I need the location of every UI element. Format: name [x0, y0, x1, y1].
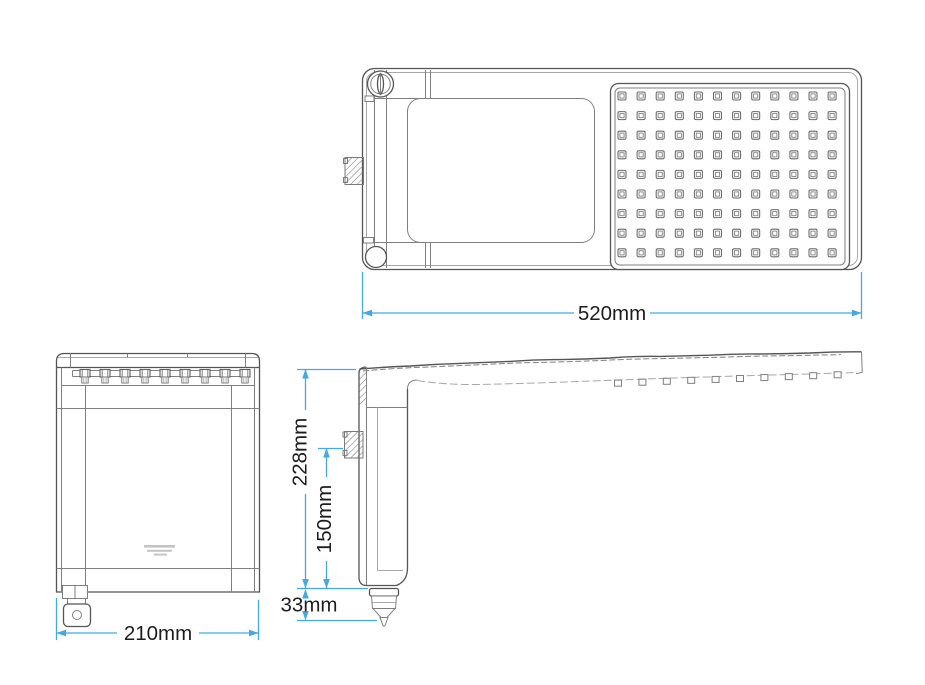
clip-head — [160, 370, 170, 378]
nozzle-inner — [792, 172, 796, 176]
nozzle — [771, 190, 779, 198]
nozzle-inner — [620, 114, 624, 118]
nozzle — [714, 249, 722, 257]
nozzle — [694, 92, 702, 100]
nozzle — [637, 112, 645, 120]
nozzle — [790, 151, 798, 159]
nozzle — [637, 151, 645, 159]
nozzle-inner — [715, 153, 719, 157]
nozzle-inner — [696, 94, 700, 98]
nozzle — [771, 249, 779, 257]
nozzle-inner — [620, 172, 624, 176]
nozzle-inner — [735, 114, 739, 118]
nozzle — [752, 131, 760, 139]
nozzle-tip — [810, 373, 817, 379]
nozzle — [809, 210, 817, 218]
spout-funnel — [373, 609, 395, 618]
nozzle — [694, 249, 702, 257]
clip-tab — [222, 377, 228, 383]
nozzle-inner — [773, 133, 777, 137]
nozzle-inner — [773, 192, 777, 196]
nozzle-inner — [715, 231, 719, 235]
nozzle-inner — [677, 94, 681, 98]
nozzle — [618, 131, 626, 139]
dim-label-top-width: 520mm — [578, 302, 646, 325]
nozzle-inner — [735, 192, 739, 196]
nozzle — [675, 249, 683, 257]
nozzle-inner — [620, 192, 624, 196]
nozzle-inner — [696, 133, 700, 137]
nozzle — [752, 92, 760, 100]
nozzle — [790, 210, 798, 218]
nozzle-inner — [811, 172, 815, 176]
nozzle-tip — [737, 375, 744, 381]
nozzle-clip — [220, 370, 230, 384]
nozzle — [790, 229, 798, 237]
clip-tab — [102, 377, 108, 383]
nozzle — [809, 92, 817, 100]
nozzle — [656, 131, 664, 139]
nozzle-inner — [830, 251, 834, 255]
clip-head — [120, 370, 130, 378]
arm-end-cap — [856, 352, 862, 374]
nozzle-inner — [754, 192, 758, 196]
nozzle — [675, 229, 683, 237]
nozzle-inner — [696, 251, 700, 255]
nozzle-inner — [696, 212, 700, 216]
clip-tab — [202, 377, 208, 383]
inlet-hatched-body — [345, 158, 364, 185]
top-latch-tab-lower — [364, 238, 374, 244]
front-view — [57, 354, 260, 627]
nozzle-inner — [658, 153, 662, 157]
dim-label-front-width: 210mm — [124, 622, 192, 645]
dim-label-side-spout: 33mm — [281, 594, 338, 617]
nozzle-tip — [688, 377, 695, 383]
nozzle-clip — [100, 370, 110, 384]
nozzle-inner — [830, 212, 834, 216]
nozzle-tip — [639, 379, 646, 385]
nozzle — [694, 151, 702, 159]
nozzle-inner — [754, 251, 758, 255]
nozzle-inner — [792, 231, 796, 235]
nozzle — [637, 190, 645, 198]
nozzle-inner — [620, 133, 624, 137]
clip-tab — [182, 377, 188, 383]
nozzle-clip — [80, 370, 90, 384]
nozzle-inner — [792, 192, 796, 196]
nozzle — [771, 92, 779, 100]
nozzle-inner — [792, 114, 796, 118]
nozzle — [733, 131, 741, 139]
brand-mark-line — [154, 554, 167, 556]
nozzle-inner — [715, 94, 719, 98]
dim-210-arrow-left — [57, 630, 67, 637]
nozzle — [675, 190, 683, 198]
nozzle-tip — [615, 380, 622, 386]
dim-150-arrow-top — [323, 448, 330, 458]
nozzle — [790, 170, 798, 178]
nozzle — [828, 229, 836, 237]
inlet-hatched-body — [345, 432, 364, 459]
nozzle — [656, 210, 664, 218]
nozzle — [771, 170, 779, 178]
inlet-pipe-hatch-side — [343, 432, 363, 459]
nozzle-inner — [811, 251, 815, 255]
nozzle — [790, 112, 798, 120]
nozzle-inner — [677, 153, 681, 157]
dim-520-arrow-left — [363, 310, 373, 317]
nozzle-inner — [735, 251, 739, 255]
nozzle — [828, 131, 836, 139]
nozzle-clip — [120, 370, 130, 384]
side-face-panel-lines — [378, 408, 404, 571]
nozzle-clip — [140, 370, 150, 384]
nozzle-inner — [639, 133, 643, 137]
clip-head — [140, 370, 150, 378]
nozzle — [694, 229, 702, 237]
dim-label-side-total: 228mm — [289, 418, 312, 486]
nozzle-inner — [830, 94, 834, 98]
nozzle — [752, 170, 760, 178]
nozzle-clip — [180, 370, 190, 384]
nozzle — [771, 131, 779, 139]
nozzle — [714, 170, 722, 178]
nozzle-inner — [773, 153, 777, 157]
clip-tab — [242, 377, 248, 383]
nozzle-inner — [639, 153, 643, 157]
technical-drawing-canvas: 520mm 210mm — [0, 0, 925, 685]
nozzle-inner — [754, 231, 758, 235]
nozzle-inner — [620, 212, 624, 216]
nozzle-inner — [677, 114, 681, 118]
nozzle-inner — [639, 114, 643, 118]
nozzle-inner — [658, 251, 662, 255]
nozzle — [694, 131, 702, 139]
nozzle-inner — [830, 231, 834, 235]
nozzle-inner — [639, 192, 643, 196]
nozzle — [809, 190, 817, 198]
nozzle — [714, 229, 722, 237]
nozzle — [694, 190, 702, 198]
nozzle — [733, 190, 741, 198]
nozzle — [694, 210, 702, 218]
nozzle — [618, 229, 626, 237]
nozzle-tip — [663, 378, 670, 384]
nozzle — [809, 112, 817, 120]
nozzle-inner — [735, 94, 739, 98]
nozzle — [828, 190, 836, 198]
nozzle-inner — [754, 114, 758, 118]
dimension-150: 150mm — [313, 448, 343, 589]
dimension-520: 520mm — [363, 272, 862, 325]
nozzle — [618, 112, 626, 120]
nozzle — [675, 112, 683, 120]
nozzle — [771, 210, 779, 218]
mounting-hole — [366, 247, 387, 268]
nozzle — [771, 151, 779, 159]
dim-150-arrow-bottom — [323, 579, 330, 589]
nozzle-inner — [658, 192, 662, 196]
nozzle — [656, 249, 664, 257]
connector-hole — [73, 611, 82, 620]
nozzle — [656, 92, 664, 100]
nozzle-inner — [696, 192, 700, 196]
nozzle-inner — [658, 172, 662, 176]
clip-head — [240, 370, 250, 378]
dim-228-arrow-top — [302, 369, 309, 379]
nozzle — [771, 112, 779, 120]
nozzle — [656, 112, 664, 120]
clip-head — [220, 370, 230, 378]
nozzle-inner — [754, 172, 758, 176]
nozzle-tip — [712, 376, 719, 382]
arm-top-edge-second-contour — [363, 355, 841, 371]
nozzle-inner — [773, 251, 777, 255]
nozzle — [675, 170, 683, 178]
nozzle-inner — [773, 212, 777, 216]
nozzle — [714, 112, 722, 120]
nozzle — [809, 131, 817, 139]
outlet-connector — [63, 586, 91, 627]
nozzle-inner — [811, 153, 815, 157]
nozzle-clip — [240, 370, 250, 384]
nozzle-inner — [677, 192, 681, 196]
clip-head — [100, 370, 110, 378]
nozzle — [675, 151, 683, 159]
front-body-outline — [57, 354, 260, 593]
nozzle — [752, 112, 760, 120]
nozzle-inner — [773, 114, 777, 118]
clip-tab — [82, 377, 88, 383]
nozzle-inner — [620, 94, 624, 98]
nozzle-inner — [773, 231, 777, 235]
nozzle — [752, 249, 760, 257]
nozzle-inner — [677, 172, 681, 176]
nozzle-inner — [639, 94, 643, 98]
clip-tab — [162, 377, 168, 383]
nozzle-inner — [696, 153, 700, 157]
nozzle — [733, 112, 741, 120]
nozzle-tip — [834, 372, 841, 378]
nozzle-inner — [754, 133, 758, 137]
nozzle — [733, 229, 741, 237]
dim-228-arrow-bottom — [302, 579, 309, 589]
clip-tab — [122, 377, 128, 383]
nozzle — [733, 210, 741, 218]
nozzle — [637, 210, 645, 218]
nozzle-inner — [830, 172, 834, 176]
nozzle — [828, 92, 836, 100]
side-body-right-edge — [397, 389, 408, 586]
nozzle-clip — [160, 370, 170, 384]
nozzle-inner — [696, 114, 700, 118]
nozzle-inner — [811, 114, 815, 118]
nozzle-inner — [639, 251, 643, 255]
nozzle — [752, 190, 760, 198]
nozzle-inner — [754, 153, 758, 157]
nozzle — [828, 112, 836, 120]
nozzle-inner — [830, 153, 834, 157]
nozzle — [733, 170, 741, 178]
nozzle — [752, 229, 760, 237]
drawing-page: 520mm 210mm — [0, 0, 925, 685]
inlet-pipe-hatch-top — [344, 158, 364, 185]
spout-collar — [370, 589, 399, 597]
nozzle — [790, 249, 798, 257]
nozzle-inner — [677, 212, 681, 216]
clip-head — [180, 370, 190, 378]
nozzle-inner — [792, 153, 796, 157]
nozzle — [618, 210, 626, 218]
nozzle-inner — [658, 212, 662, 216]
nozzle-inner — [658, 114, 662, 118]
nozzle — [637, 249, 645, 257]
nozzle-clip — [200, 370, 210, 384]
nozzle — [694, 112, 702, 120]
nozzle — [675, 131, 683, 139]
nozzle-inner — [754, 94, 758, 98]
nozzle — [828, 249, 836, 257]
nozzle-inner — [677, 231, 681, 235]
nozzle-inner — [792, 133, 796, 137]
nozzle — [733, 249, 741, 257]
nozzle-inner — [677, 133, 681, 137]
nozzle-inner — [639, 212, 643, 216]
nozzle — [618, 190, 626, 198]
nozzle-inner — [715, 192, 719, 196]
dimension-33: 33mm — [281, 589, 377, 621]
clip-head — [80, 370, 90, 378]
nozzle-inner — [696, 231, 700, 235]
nozzle — [637, 170, 645, 178]
side-body-bottom-edge — [359, 578, 397, 586]
top-view — [344, 69, 862, 270]
nozzle — [618, 170, 626, 178]
nozzle-tip — [761, 375, 768, 381]
nozzle — [714, 190, 722, 198]
nozzle-inner — [735, 133, 739, 137]
nozzle-inner — [696, 172, 700, 176]
nozzle — [714, 131, 722, 139]
nozzle-inner — [639, 172, 643, 176]
adjustment-knob — [368, 71, 394, 97]
nozzle-inner — [754, 212, 758, 216]
nozzle-inner — [735, 212, 739, 216]
nozzle — [809, 229, 817, 237]
nozzle — [733, 151, 741, 159]
clip-tab — [142, 377, 148, 383]
nozzle — [656, 229, 664, 237]
nozzle-inner — [735, 153, 739, 157]
spout-tip — [380, 618, 388, 627]
brand-mark-line — [144, 545, 175, 548]
nozzle-inner — [792, 212, 796, 216]
nozzle-inner — [715, 212, 719, 216]
nozzle-clip-row — [80, 370, 250, 384]
nozzle — [694, 170, 702, 178]
nozzle-inner — [677, 251, 681, 255]
dim-520-arrow-right — [852, 310, 862, 317]
nozzle — [828, 210, 836, 218]
nozzle-inner — [735, 231, 739, 235]
nozzle — [618, 92, 626, 100]
nozzle-inner — [658, 133, 662, 137]
dim-label-side-inlet: 150mm — [313, 485, 336, 553]
nozzle-inner — [620, 153, 624, 157]
nozzle-inner — [811, 94, 815, 98]
top-cover-panel — [408, 99, 595, 243]
nozzle — [828, 151, 836, 159]
nozzle-inner — [735, 172, 739, 176]
nozzle — [656, 190, 664, 198]
nozzle-inner — [715, 172, 719, 176]
nozzle-inner — [715, 251, 719, 255]
dimension-228: 228mm — [289, 369, 368, 589]
nozzle — [675, 92, 683, 100]
nozzle-inner — [715, 114, 719, 118]
nozzle — [771, 229, 779, 237]
nozzle — [790, 131, 798, 139]
nozzle-inner — [773, 172, 777, 176]
nozzle — [656, 170, 664, 178]
nozzle-inner — [811, 231, 815, 235]
nozzle — [809, 151, 817, 159]
nozzle-inner — [715, 133, 719, 137]
nozzle — [809, 249, 817, 257]
nozzle — [733, 92, 741, 100]
nozzle — [714, 151, 722, 159]
brand-mark-line — [147, 550, 172, 552]
top-latch-tab-upper — [365, 96, 374, 102]
nozzle-inner — [620, 231, 624, 235]
nozzle-inner — [830, 133, 834, 137]
nozzle-inner — [792, 94, 796, 98]
side-body-to-arm-curve — [408, 380, 418, 389]
nozzle-inner — [639, 231, 643, 235]
nozzle — [809, 170, 817, 178]
nozzle — [714, 210, 722, 218]
nozzle-inner — [830, 114, 834, 118]
dim-210-arrow-right — [249, 630, 259, 637]
nozzle-inner — [830, 192, 834, 196]
nozzle — [675, 210, 683, 218]
nozzle-inner — [811, 212, 815, 216]
nozzle-inner — [658, 231, 662, 235]
nozzle — [637, 229, 645, 237]
connector-neck-lines — [68, 599, 86, 605]
nozzle — [618, 151, 626, 159]
nozzle — [637, 131, 645, 139]
nozzle — [790, 92, 798, 100]
side-view — [343, 352, 862, 627]
nozzle — [637, 92, 645, 100]
nozzle — [618, 249, 626, 257]
nozzle-tip — [785, 374, 792, 380]
nozzle — [714, 92, 722, 100]
nozzle — [656, 151, 664, 159]
nozzle-inner — [811, 133, 815, 137]
nozzle-inner — [792, 251, 796, 255]
nozzle-inner — [773, 94, 777, 98]
nozzle-inner — [811, 192, 815, 196]
clip-head — [200, 370, 210, 378]
nozzle — [790, 190, 798, 198]
nozzle-inner — [658, 94, 662, 98]
nozzle — [752, 151, 760, 159]
nozzle — [828, 170, 836, 178]
nozzle — [752, 210, 760, 218]
